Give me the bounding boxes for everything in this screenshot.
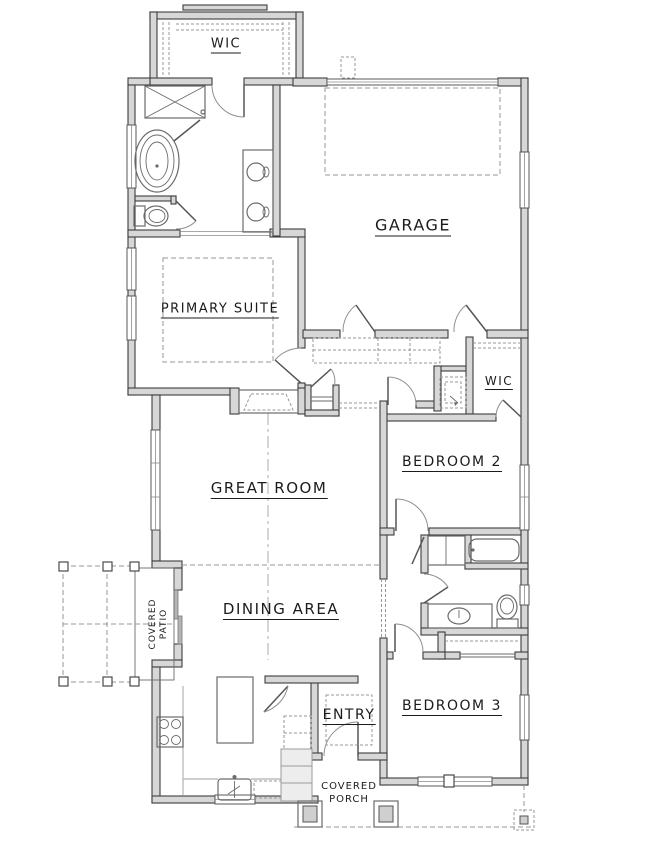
refrigerator [284, 716, 311, 750]
covered-porch-line1: COVERED [321, 780, 377, 793]
room-label-covered-porch: COVERED PORCH [321, 780, 377, 806]
entry-steps [281, 749, 312, 801]
window-suite-west-2 [127, 296, 136, 340]
freestanding-tub [135, 130, 179, 192]
room-label-wic-2: WIC [485, 374, 513, 390]
room-label-covered-patio: COVERED PATIO [148, 599, 171, 650]
door-hall-closet [311, 369, 335, 387]
door-garage-west [343, 305, 375, 332]
linen-closet [428, 536, 465, 565]
covered-porch-line2: PORCH [321, 793, 377, 806]
room-label-garage: GARAGE [375, 216, 451, 237]
hall-closet-shelves [311, 397, 333, 401]
door-bedroom2 [396, 499, 428, 531]
floor-plan: WIC GARAGE PRIMARY SUITE WIC BEDROOM 2 G… [0, 0, 650, 841]
garage-door-panel [327, 79, 498, 85]
hall-bathtub [469, 539, 519, 561]
room-label-dining-area: DINING AREA [223, 600, 339, 620]
door-hall-bath [424, 574, 448, 603]
shower [145, 86, 205, 118]
sliding-glass-door [174, 590, 182, 644]
water-heater [440, 377, 466, 408]
door-front-entry [324, 722, 358, 756]
walls [128, 5, 528, 803]
room-label-bedroom-3: BEDROOM 3 [402, 698, 502, 716]
primary-toilet [134, 206, 168, 226]
covered-patio-line2: PATIO [159, 599, 170, 650]
door-corner-pantry [264, 686, 288, 712]
window-great-room-west [151, 430, 160, 530]
window-garage-east [520, 152, 529, 208]
hall-vanity [428, 604, 492, 628]
window-bedroom3-south [418, 775, 492, 787]
door-primary-suite [275, 348, 301, 383]
covered-patio-line1: COVERED [148, 599, 159, 650]
window-bedroom2-east [520, 465, 529, 530]
room-label-wic-top: WIC [211, 37, 241, 54]
garage-storage-dashed [325, 88, 500, 175]
fireplace-firebox-dashed [244, 394, 293, 410]
mudroom-built-ins [313, 338, 440, 363]
door-wic-top [212, 85, 244, 117]
door-garage-east [454, 305, 487, 332]
garage-roof-bump [341, 57, 355, 78]
range-cooktop [157, 717, 183, 747]
door-toilet-room [176, 201, 196, 229]
window-suite-west-1 [127, 248, 136, 290]
window-bath2-east [520, 585, 529, 605]
door-bedroom3 [395, 624, 423, 652]
room-label-bedroom-2: BEDROOM 2 [402, 454, 502, 472]
room-label-primary-suite: PRIMARY SUITE [161, 302, 279, 319]
double-vanity [243, 150, 273, 232]
door-wic2 [496, 400, 521, 417]
shower-door [174, 120, 200, 141]
bedroom3-closet-opening [460, 654, 515, 657]
door-hall-to-mudroom [388, 377, 416, 405]
room-label-entry: ENTRY [323, 707, 376, 725]
room-label-great-room: GREAT ROOM [211, 479, 328, 499]
hall-toilet [497, 595, 518, 628]
kitchen-island [217, 677, 253, 743]
window-bedroom3-east [520, 695, 529, 740]
